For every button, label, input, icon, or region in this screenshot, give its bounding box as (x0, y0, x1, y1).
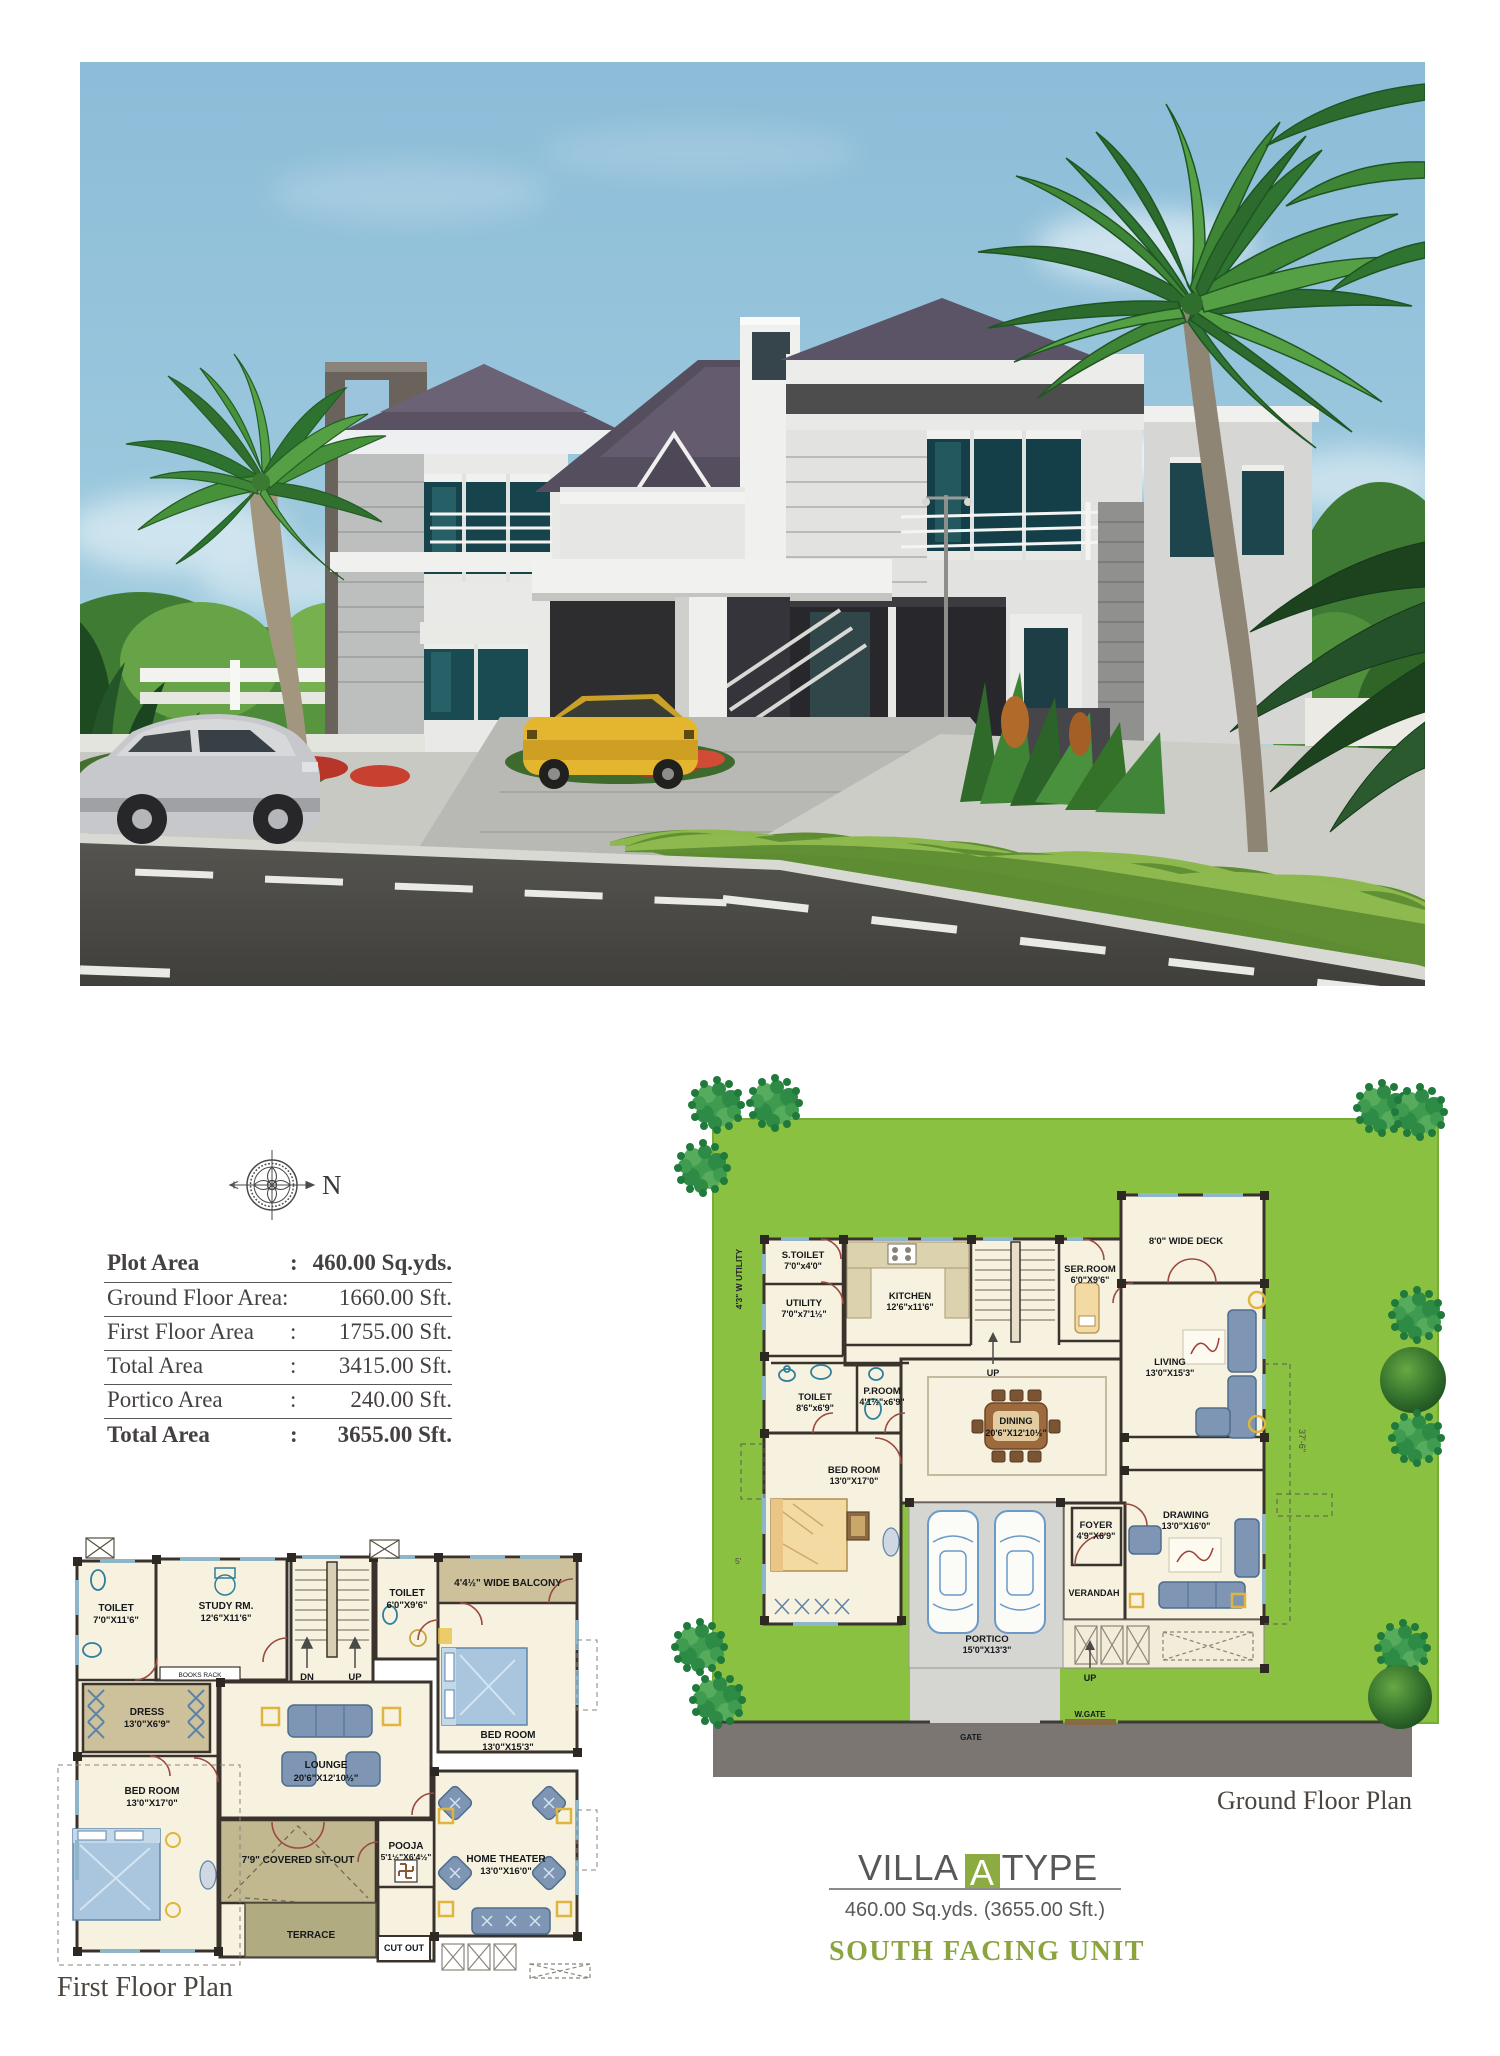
svg-text:8'6"x6'9": 8'6"x6'9" (796, 1403, 834, 1413)
svg-text:KITCHEN: KITCHEN (889, 1291, 931, 1302)
svg-text:DRAWING: DRAWING (1163, 1510, 1209, 1521)
svg-text:20'6"X12'10½": 20'6"X12'10½" (294, 1773, 359, 1784)
svg-text:BED ROOM: BED ROOM (481, 1730, 536, 1741)
svg-text:UP: UP (348, 1672, 362, 1683)
svg-text:4'9"X6'9": 4'9"X6'9" (1077, 1531, 1116, 1541)
svg-text:37'-6": 37'-6" (1297, 1429, 1307, 1452)
svg-text:UTILITY: UTILITY (786, 1298, 823, 1309)
svg-text:TOILET: TOILET (389, 1588, 424, 1599)
svg-text:7'0"x4'0": 7'0"x4'0" (784, 1261, 822, 1271)
svg-text:13'0"X15'3": 13'0"X15'3" (1146, 1368, 1195, 1378)
svg-text:STUDY RM.: STUDY RM. (199, 1601, 254, 1612)
svg-text:6'0"X9'6": 6'0"X9'6" (387, 1600, 428, 1611)
svg-text:6'0"X9'6": 6'0"X9'6" (1071, 1275, 1110, 1285)
svg-text:N: N (322, 1170, 342, 1200)
svg-text:4'4½" WIDE BALCONY: 4'4½" WIDE BALCONY (454, 1578, 562, 1589)
svg-text:7'0"X11'6": 7'0"X11'6" (93, 1615, 139, 1626)
svg-text:UP: UP (987, 1368, 1000, 1378)
svg-text:20'6"X12'10½": 20'6"X12'10½" (985, 1428, 1046, 1438)
svg-text:UP: UP (1084, 1673, 1097, 1683)
svg-text:15'0"X13'3": 15'0"X13'3" (963, 1645, 1012, 1655)
svg-text:LIVING: LIVING (1154, 1357, 1186, 1368)
svg-text:P.ROOM: P.ROOM (863, 1386, 900, 1397)
svg-text:12'6"X11'6": 12'6"X11'6" (200, 1613, 251, 1624)
svg-text:DN: DN (300, 1672, 314, 1683)
svg-text:13'0"X17'0": 13'0"X17'0" (830, 1476, 879, 1486)
svg-text:7'9" COVERED SIT-OUT: 7'9" COVERED SIT-OUT (242, 1855, 355, 1866)
svg-text:GATE: GATE (960, 1733, 982, 1742)
svg-text:SER.ROOM: SER.ROOM (1064, 1264, 1116, 1275)
svg-text:13'0"X17'0": 13'0"X17'0" (126, 1798, 178, 1809)
svg-text:4'3" W UTILITY: 4'3" W UTILITY (734, 1248, 744, 1309)
svg-text:S.TOILET: S.TOILET (782, 1250, 825, 1261)
svg-text:VERANDAH: VERANDAH (1068, 1588, 1119, 1598)
svg-text:13'0"X16'0": 13'0"X16'0" (480, 1866, 532, 1877)
svg-text:BED ROOM: BED ROOM (125, 1786, 180, 1797)
svg-text:FOYER: FOYER (1080, 1520, 1113, 1531)
svg-text:13'0"X16'0": 13'0"X16'0" (1162, 1521, 1211, 1531)
svg-text:DRESS: DRESS (130, 1707, 165, 1718)
svg-text:PORTICO: PORTICO (965, 1634, 1008, 1645)
svg-text:POOJA: POOJA (388, 1841, 423, 1852)
svg-text:BED ROOM: BED ROOM (828, 1465, 880, 1476)
svg-text:TERRACE: TERRACE (287, 1930, 336, 1941)
svg-text:13'0"X15'3": 13'0"X15'3" (482, 1742, 534, 1753)
svg-text:7'0"x7'1½": 7'0"x7'1½" (781, 1309, 826, 1319)
svg-text:8'0" WIDE DECK: 8'0" WIDE DECK (1149, 1236, 1223, 1247)
svg-text:5'1½"X6'4½": 5'1½"X6'4½" (381, 1852, 432, 1862)
svg-text:TOILET: TOILET (98, 1603, 133, 1614)
svg-text:5': 5' (735, 1556, 742, 1566)
svg-text:W.GATE: W.GATE (1075, 1710, 1107, 1719)
svg-text:13'0"X6'9": 13'0"X6'9" (124, 1719, 170, 1730)
svg-text:4'1½"x6'9": 4'1½"x6'9" (859, 1397, 904, 1407)
svg-text:BOOKS RACK: BOOKS RACK (179, 1672, 223, 1679)
svg-text:LOUNGE: LOUNGE (305, 1760, 348, 1771)
svg-text:HOME THEATER: HOME THEATER (466, 1854, 546, 1865)
svg-text:12'6"x11'6": 12'6"x11'6" (886, 1302, 933, 1312)
svg-text:TOILET: TOILET (798, 1392, 832, 1403)
svg-text:DINING: DINING (999, 1416, 1032, 1427)
svg-text:CUT OUT: CUT OUT (384, 1943, 424, 1953)
